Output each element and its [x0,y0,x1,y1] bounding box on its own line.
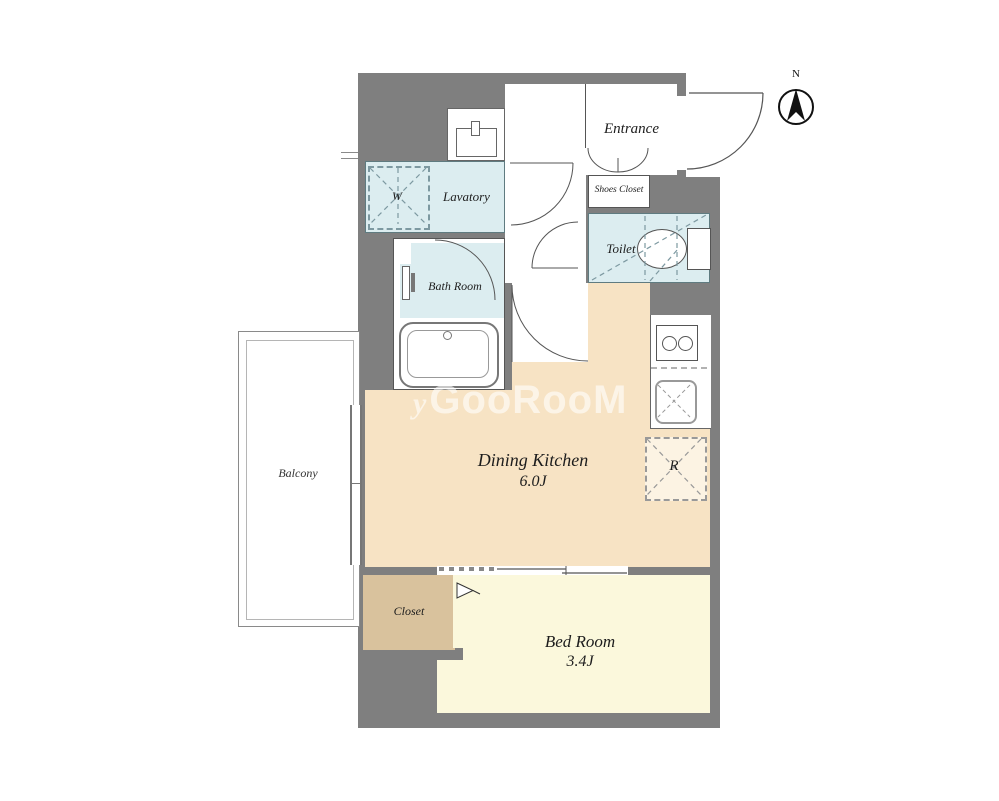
wall-vent-line [341,158,358,159]
entrance-label: Entrance [586,121,677,138]
door-swing-area [512,283,588,362]
toilet-tank-icon [687,228,711,270]
burner-icon [662,336,677,351]
shoes-closet-label: Shoes Closet [588,185,650,195]
shower-fixture-icon [402,266,410,300]
faucet-icon [471,121,480,136]
balcony-label: Balcony [238,466,358,481]
sliding-door [437,566,628,575]
hall-entrance-divider [585,84,586,148]
toilet-label: Toilet [590,241,652,257]
bedroom-floor-extension [437,660,463,713]
bedroom-name: Bed Room [485,631,675,652]
site-watermark: yGooRooM [413,378,743,423]
bedroom-label: Bed Room 3.4J [485,631,675,672]
dining-kitchen-size: 6.0J [438,472,628,491]
compass-north-label: N [781,68,811,80]
dining-kitchen-name: Dining Kitchen [438,450,628,472]
refrigerator-label: R [645,458,703,475]
closet-label: Closet [363,604,455,619]
wall-vent-line [341,152,358,153]
watermark-logo-glyph: y [413,387,427,420]
wall-cut [686,70,732,177]
compass-icon [779,89,813,124]
lavatory-label: Lavatory [428,189,505,205]
hallway-floor [505,84,586,283]
floor-plan: Entrance Shoes Closet Toilet Lavatory W … [0,0,999,801]
watermark-text: GooRooM [429,378,627,422]
balcony-window [350,405,362,565]
bath-room-label: Bath Room [410,279,500,294]
washing-machine-label: W [368,189,426,204]
window-divider [350,483,362,484]
bedroom-size: 3.4J [485,652,675,672]
dining-kitchen-label: Dining Kitchen 6.0J [438,450,628,491]
entrance-doorway-opening [677,96,687,170]
bathroom-corner-notch [394,239,411,264]
burner-icon [678,336,693,351]
bathtub-drain-icon [443,331,452,340]
